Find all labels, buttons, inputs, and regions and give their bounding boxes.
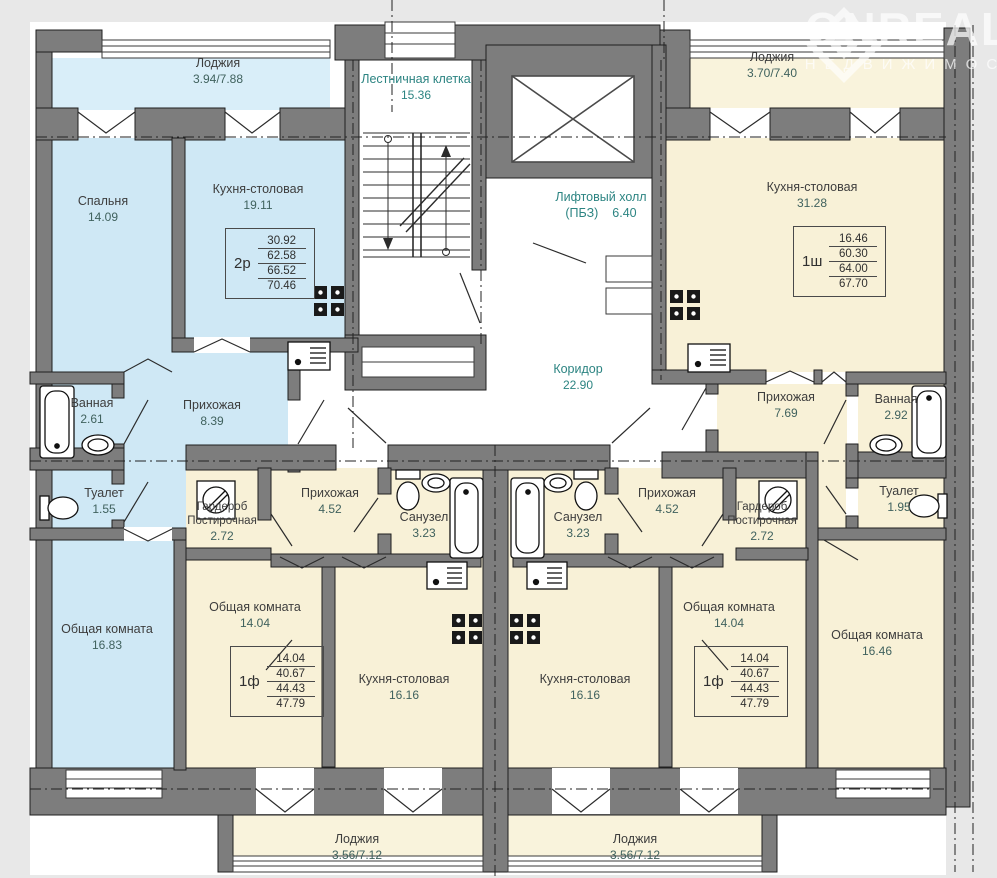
room-label-living-left: Общая комната 16.83 [61, 622, 153, 653]
bathtub-icon [511, 478, 544, 558]
toilet-icon [40, 496, 78, 520]
sink-icon [422, 474, 450, 492]
spec-table-2r: 2р 30.92 62.58 66.52 70.46 [225, 228, 315, 299]
room-label-bathroom-left: Ванная 2.61 [71, 396, 114, 427]
kitchen-sink-icon [688, 344, 730, 372]
room-label-wardrobe-bottom-left: Гардероб Постирочная 2.72 [187, 500, 257, 544]
room-label-loggia-top-left: Лоджия 3.94/7.88 [193, 56, 243, 87]
room-label-loggia-top-right: Лоджия 3.70/7.40 [747, 50, 797, 81]
kitchen-sink-icon [527, 562, 567, 589]
room-label-wc-left: Туалет 1.55 [84, 486, 124, 517]
room-label-hallway-right: Прихожая 7.69 [757, 390, 815, 421]
room-label-living-bottom-left: Общая комната 14.04 [209, 600, 301, 631]
kitchen-sink-icon [427, 562, 467, 589]
sink-icon [870, 435, 902, 455]
room-label-living-bottom-right: Общая комната 14.04 [683, 600, 775, 631]
sink-icon [544, 474, 572, 492]
spec-table-1sh: 1ш 16.46 60.30 64.00 67.70 [793, 226, 886, 297]
room-label-staircase: Лестничная клетка 15.36 [361, 72, 471, 103]
room-label-kitchen-bottom-left: Кухня-столовая 16.16 [359, 672, 450, 703]
floorplan-drawing [0, 0, 997, 878]
floorplan-page: ONREAL НЕДВИЖИМОС Лоджия 3.94/7.88 Спаль… [0, 0, 997, 878]
room-label-kitchen-left: Кухня-столовая 19.11 [213, 182, 304, 213]
room-label-hallway-left: Прихожая 8.39 [183, 398, 241, 429]
room-label-sanuzel-bottom-left: Санузел 3.23 [400, 510, 449, 541]
room-label-living-right: Общая комната 16.46 [831, 628, 923, 659]
room-label-loggia-bottom-left: Лоджия 3.56/7.12 [332, 832, 382, 863]
bathtub-icon [450, 478, 483, 558]
room-label-wardrobe-bottom-right: Гардероб Постирочная 2.72 [727, 500, 797, 544]
bathtub-icon [40, 386, 74, 458]
kitchen-sink-icon [288, 342, 330, 370]
room-label-kitchen-bottom-right: Кухня-столовая 16.16 [540, 672, 631, 703]
sink-icon [82, 435, 114, 455]
room-label-bathroom-right: Ванная 2.92 [875, 392, 918, 423]
room-label-kitchen-right: Кухня-столовая 31.28 [767, 180, 858, 211]
spec-table-1f-left: 1ф 14.04 40.67 44.43 47.79 [230, 646, 324, 717]
spec-table-1f-right: 1ф 14.04 40.67 44.43 47.79 [694, 646, 788, 717]
toilet-icon [396, 470, 420, 510]
room-label-hallway-bottom-right: Прихожая 4.52 [638, 486, 696, 517]
room-label-bedroom: Спальня 14.09 [78, 194, 128, 225]
room-label-corridor: Коридор 22.90 [553, 362, 602, 393]
room-label-loggia-bottom-right: Лоджия 3.56/7.12 [610, 832, 660, 863]
room-label-sanuzel-bottom-right: Санузел 3.23 [554, 510, 603, 541]
room-label-hallway-bottom-left: Прихожая 4.52 [301, 486, 359, 517]
toilet-icon [574, 470, 598, 510]
room-label-wc-right: Туалет 1.95 [879, 484, 919, 515]
room-label-lift-hall: Лифтовый холл (ПБЗ)6.40 [555, 190, 646, 221]
